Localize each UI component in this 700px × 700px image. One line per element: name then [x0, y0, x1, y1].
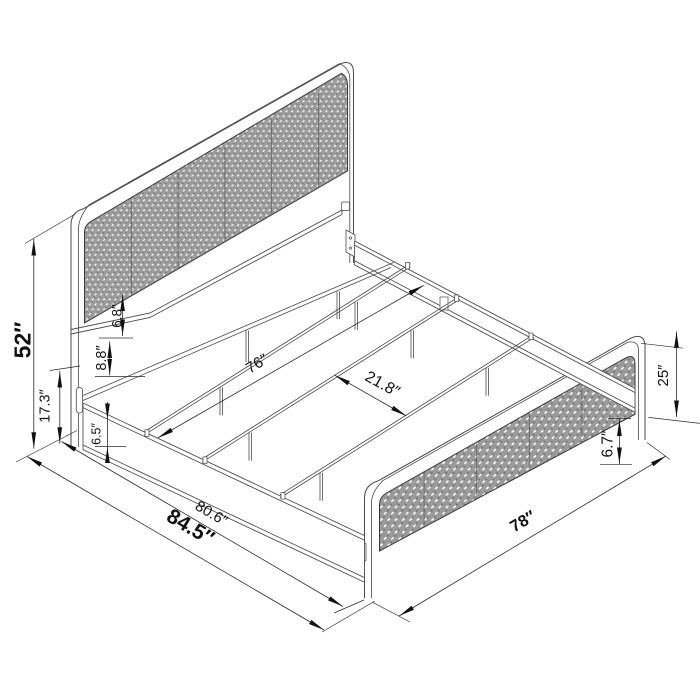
svg-text:25″: 25″ — [655, 364, 672, 387]
svg-text:52″: 52″ — [10, 322, 36, 359]
svg-text:6.8″: 6.8″ — [110, 304, 125, 328]
svg-text:6.7″: 6.7″ — [600, 430, 617, 458]
svg-text:8.8″: 8.8″ — [94, 345, 110, 370]
svg-text:17.3″: 17.3″ — [37, 389, 53, 422]
svg-text:6.5″: 6.5″ — [90, 423, 104, 445]
